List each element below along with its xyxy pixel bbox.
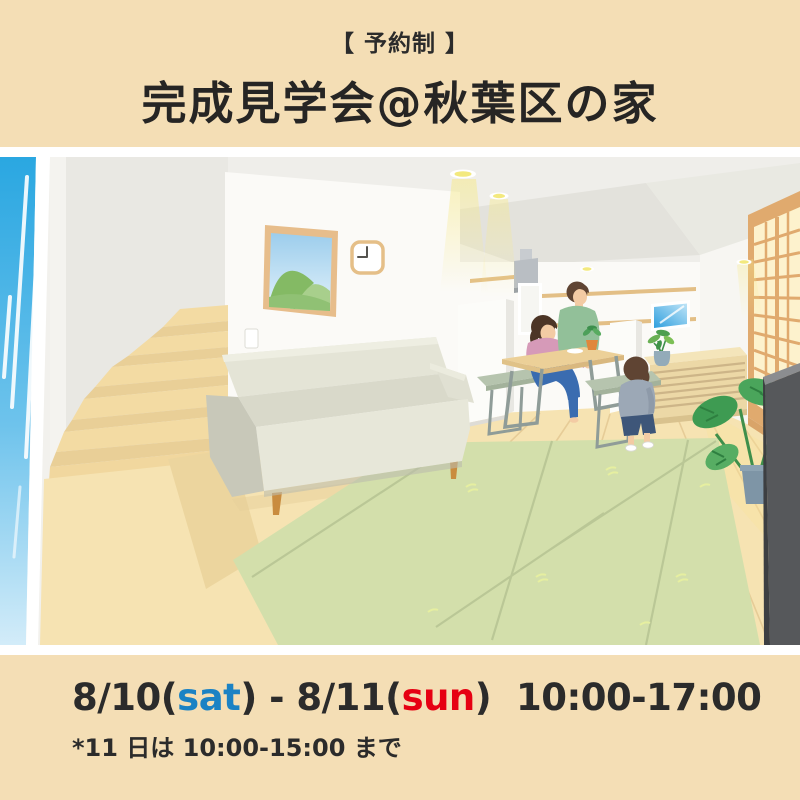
saturday-label: sat xyxy=(177,676,240,719)
illustration-frame xyxy=(0,147,800,655)
schedule-note: *11 日は 10:00-15:00 まで xyxy=(72,728,790,763)
footer: 8/10(sat) - 8/11(sun) 10:00-17:00 *11 日は… xyxy=(0,655,800,800)
header: 【 予約制 】 完成見学会@秋葉区の家 xyxy=(0,0,800,147)
wall-clock xyxy=(352,242,383,273)
schedule-line: 8/10(sat) - 8/11(sun) 10:00-17:00 xyxy=(72,676,790,719)
light-switch xyxy=(245,329,258,348)
date-separator: ) - xyxy=(240,676,296,719)
living-room-illustration xyxy=(0,157,800,645)
date-start: 8/10( xyxy=(72,676,177,719)
reservation-badge: 【 予約制 】 xyxy=(0,24,800,58)
paren-close: ) xyxy=(475,676,516,719)
sunday-label: sun xyxy=(402,676,475,719)
wall-tv xyxy=(651,300,690,331)
event-title: 完成見学会@秋葉区の家 xyxy=(0,67,800,132)
time-range: 10:00-17:00 xyxy=(516,676,761,719)
wall-art xyxy=(263,225,338,317)
tv xyxy=(763,363,800,645)
date-end: 8/11( xyxy=(296,676,401,719)
event-flyer: 【 予約制 】 完成見学会@秋葉区の家 xyxy=(0,0,800,800)
